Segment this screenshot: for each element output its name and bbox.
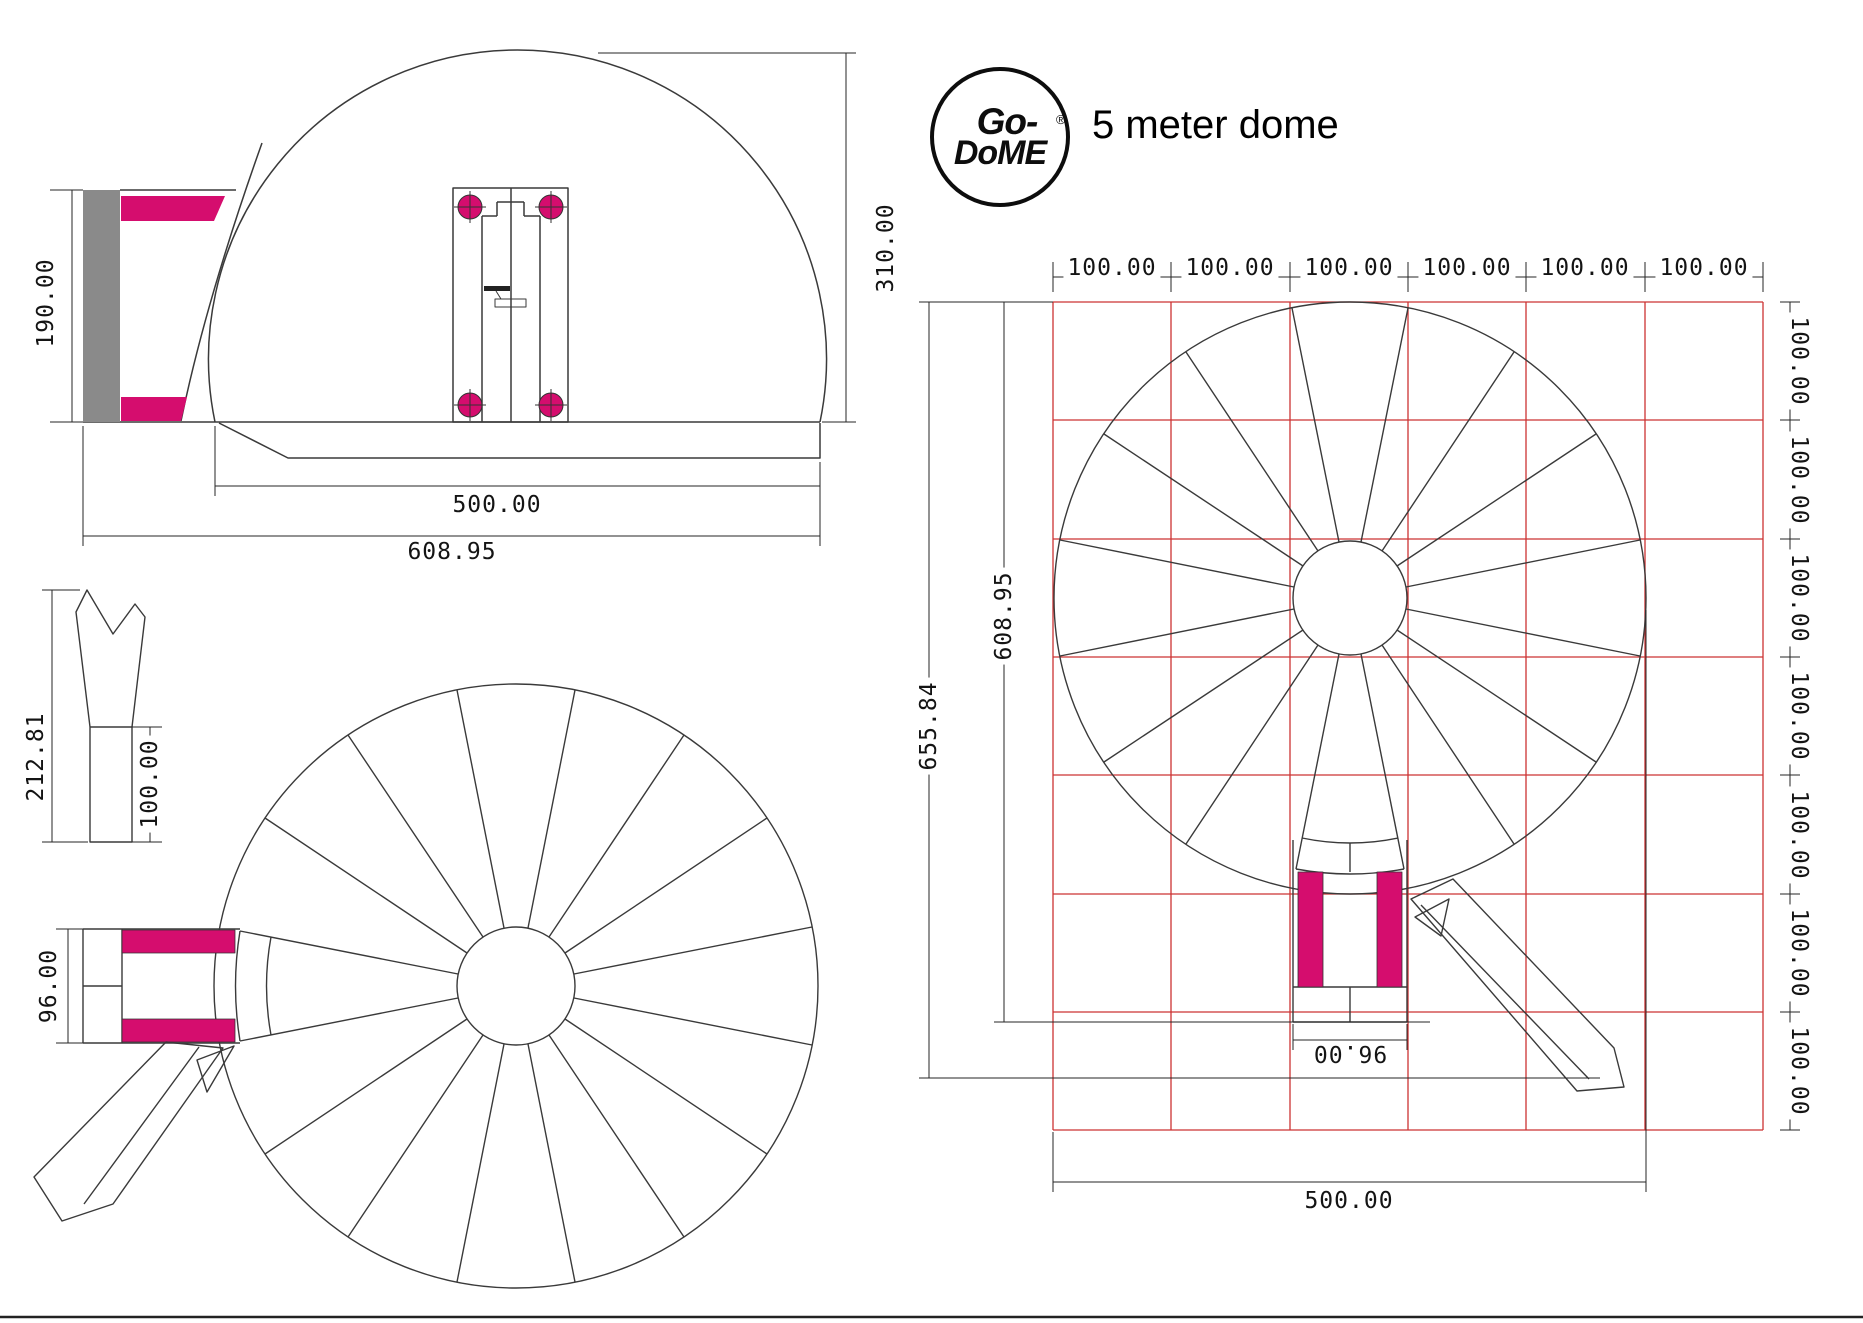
dim-grid-tunnel-width: 96.00 — [1313, 1040, 1387, 1066]
blueprint-page: 190.00 310.00 500.00 608.95 212.81 100.0… — [0, 0, 1863, 1323]
dim-grid-top-4: 100.00 — [1418, 255, 1515, 281]
tunnel-inner-curve — [181, 143, 262, 421]
dim-gore-total: 212.81 — [23, 712, 49, 801]
go-dome-logo: Go- DoME — [930, 67, 1070, 207]
door-flap — [34, 1042, 223, 1221]
gore-panel-outline — [76, 590, 145, 842]
gore-seam-lines — [240, 690, 812, 1282]
entrance-band-arcs — [236, 931, 272, 1041]
dome-hub — [457, 927, 575, 1045]
tunnel-front-bar — [83, 190, 120, 422]
door-flap-notch — [197, 1046, 234, 1092]
dim-grid-top-1: 100.00 — [1063, 255, 1160, 281]
tunnel-band-bottom — [122, 1019, 235, 1042]
logo-line1: Go- — [977, 105, 1038, 138]
center-mast — [482, 188, 540, 422]
dim-grid-dome-height: 608.95 — [991, 567, 1017, 664]
dimension-lines — [42, 53, 1800, 1192]
dim-grid-top-5: 100.00 — [1536, 255, 1633, 281]
dim-grid-right-5: 100.00 — [1786, 786, 1812, 883]
door-flap — [1411, 879, 1624, 1091]
dim-grid-top-3: 100.00 — [1300, 255, 1397, 281]
registered-mark: ® — [1056, 112, 1066, 127]
dim-side-total-width: 608.95 — [407, 539, 496, 565]
dim-grid-dome-width: 500.00 — [1304, 1188, 1393, 1214]
dim-plan-tunnel-width: 96.00 — [36, 949, 62, 1023]
dim-grid-right-1: 100.00 — [1786, 312, 1812, 409]
ground-skirt — [219, 423, 820, 458]
dim-grid-overall-height: 655.84 — [916, 677, 942, 774]
tunnel-band-bottom — [121, 397, 187, 421]
dome-hub — [1293, 541, 1407, 655]
dim-grid-right-7: 100.00 — [1786, 1022, 1812, 1119]
dome-outline — [209, 50, 827, 422]
grid-lines — [1053, 302, 1763, 1130]
logo-line2: DoME — [954, 138, 1046, 169]
gore-seam-lines — [1060, 308, 1640, 869]
tunnel-band-right — [1377, 872, 1402, 987]
dim-grid-right-2: 100.00 — [1786, 431, 1812, 528]
dim-grid-right-6: 100.00 — [1786, 904, 1812, 1001]
dim-grid-right-3: 100.00 — [1786, 549, 1812, 646]
tiny-label-leader — [496, 291, 501, 299]
dim-grid-top-2: 100.00 — [1181, 255, 1278, 281]
tunnel-band-top — [121, 196, 225, 221]
dim-grid-top-6: 100.00 — [1655, 255, 1752, 281]
tiny-label-blob — [484, 286, 510, 291]
dim-side-tunnel-height: 190.00 — [33, 258, 59, 347]
tunnel-band-top — [122, 930, 235, 953]
dim-gore-skirt: 100.00 — [137, 735, 163, 832]
dome-rim — [214, 684, 818, 1288]
dim-side-total-height: 310.00 — [873, 203, 899, 292]
dim-side-dome-width: 500.00 — [452, 492, 541, 518]
tunnel-band-left — [1298, 872, 1323, 987]
drawing-canvas — [0, 0, 1863, 1323]
side-view — [83, 50, 826, 458]
page-title: 5 meter dome — [1092, 103, 1339, 148]
gore-panel — [76, 590, 145, 842]
dim-grid-right-4: 100.00 — [1786, 667, 1812, 764]
door-flap-notch — [1415, 899, 1449, 936]
dome-rim — [1054, 302, 1646, 894]
